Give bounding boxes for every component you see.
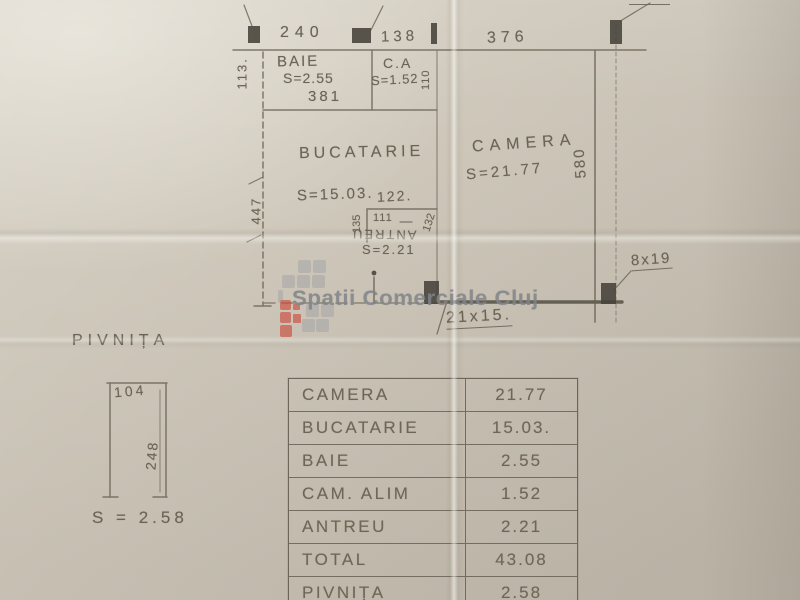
dim-132-label: 132 <box>421 201 442 233</box>
pivnita-width-label: 104 <box>113 382 147 401</box>
table-row: ANTREU 2.21 <box>289 511 577 544</box>
pivnita-title: PIVNIȚA <box>72 332 169 350</box>
table-area-value: 2.58 <box>466 577 577 600</box>
pivnita-area-label: S = 2.58 <box>92 508 188 528</box>
table-room-label: CAM. ALIM <box>289 478 466 510</box>
dim-122-label: 122. <box>377 187 413 205</box>
pillar-icon <box>248 26 260 43</box>
room-baie-area: S=2.55 <box>283 70 334 86</box>
table-room-label: CAMERA <box>289 379 466 411</box>
pillar-icon <box>610 20 622 44</box>
room-antreu-label: ANTREU <box>351 226 417 242</box>
table-row: BUCATARIE 15.03. <box>289 412 577 445</box>
table-area-value: 2.21 <box>466 511 577 543</box>
pillar-icon <box>601 283 616 304</box>
table-room-label: TOTAL <box>289 544 466 576</box>
table-room-label: ANTREU <box>289 511 466 543</box>
dim-110-label: 110 <box>420 60 432 90</box>
table-row: CAMERA 21.77 <box>289 379 577 412</box>
table-area-value: 43.08 <box>466 544 577 576</box>
pillar-size-note: 8x19 <box>630 250 672 272</box>
dim-240-label: 240 <box>280 24 325 42</box>
table-area-value: 21.77 <box>466 379 577 411</box>
table-area-value: 1.52 <box>466 478 577 510</box>
table-room-label: BUCATARIE <box>289 412 466 444</box>
dim-376-label: 376 <box>487 28 529 47</box>
table-row: PIVNIȚA 2.58 <box>289 577 577 600</box>
pivnita-depth-label: 248 <box>142 433 161 470</box>
table-row: CAM. ALIM 1.52 <box>289 478 577 511</box>
watermark-text: Spatii Comerciale Cluj <box>292 287 539 311</box>
table-room-label: PIVNIȚA <box>289 577 466 600</box>
table-row: TOTAL 43.08 <box>289 544 577 577</box>
pillar-icon <box>352 28 371 43</box>
watermark: Spatii Comerciale Cluj <box>278 258 578 338</box>
table-area-value: 2.55 <box>466 445 577 477</box>
pillar-icon <box>431 23 437 44</box>
floorplan-photo: 240 138 376 113. 381 110 447 580 122. 13… <box>0 0 800 600</box>
dim-138-label: 138 <box>381 27 419 45</box>
room-ca-area: S=1.52 <box>371 71 419 88</box>
room-antreu-area: S=2.21 <box>362 242 416 257</box>
dim-113-label: 113. <box>235 54 250 90</box>
room-ca-label: C.A <box>383 55 412 71</box>
dim-111-label: 111 <box>373 212 393 224</box>
room-camera-label: CAMERA <box>471 131 576 156</box>
room-camera-area: S=21.77 <box>465 160 543 184</box>
table-row: BAIE 2.55 <box>289 445 577 478</box>
pillar-size-note-top: 8x19 <box>629 0 670 5</box>
room-baie-label: BAIE <box>277 53 319 71</box>
table-area-value: 15.03. <box>466 412 577 444</box>
table-room-label: BAIE <box>289 445 466 477</box>
dim-447-label: 447 <box>249 189 264 225</box>
areas-table: CAMERA 21.77 BUCATARIE 15.03. BAIE 2.55 … <box>288 378 578 600</box>
room-bucatarie-label: BUCATARIE <box>299 143 424 163</box>
room-bucatarie-area: S=15.03. <box>297 185 374 205</box>
dim-381-label: 381 <box>308 88 342 105</box>
